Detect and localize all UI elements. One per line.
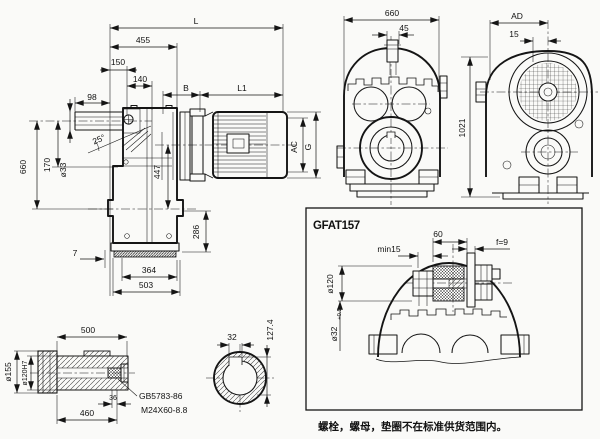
label-bolt-spec: M24X60-8.8 [141, 405, 188, 415]
dim-label-25deg: 25° [91, 132, 107, 146]
detail-box-title: GFAT157 [313, 220, 360, 232]
dim-label-140: 140 [133, 74, 147, 84]
dim-label-G: G [303, 144, 313, 151]
shaft-section-drawing: 32 127.4 [206, 319, 275, 412]
dim-label-AC: AC [289, 141, 299, 153]
dim-label-d120: ø120 [325, 274, 335, 294]
dim-label-AD: AD [511, 11, 523, 21]
dim-label-L1: L1 [237, 83, 247, 93]
dim-label-d120H7: ø120H7 [22, 360, 29, 385]
dim-label-127-4: 127.4 [265, 319, 275, 341]
shaft-collar [84, 351, 110, 356]
dim-label-d155: ø155 [3, 362, 13, 382]
foot-pad [114, 251, 176, 257]
dim-label-36: 36 [109, 395, 117, 402]
dim-label-170: 170 [42, 158, 52, 172]
dim-label-d33: ø33 [58, 162, 68, 177]
base-strip [350, 184, 434, 191]
dim-label-447: 447 [152, 165, 162, 179]
dim-label-503: 503 [139, 280, 153, 290]
detail-box: GFAT157 [306, 208, 582, 410]
dim-label-min15: min15 [377, 244, 400, 254]
fan-hub [539, 83, 557, 101]
dim-label-364: 364 [142, 265, 156, 275]
detail-pad-left [369, 335, 397, 354]
dim-label-455: 455 [136, 35, 150, 45]
dim-label-150: 150 [111, 57, 125, 67]
technical-drawing-page: L 455 150 140 B L1 98 660 170 ø33 25° 44… [0, 0, 600, 439]
motor-junction-box [227, 134, 249, 153]
detail-casting-line [391, 309, 507, 320]
dim-label-L: L [194, 16, 199, 26]
dim-label-500: 500 [81, 325, 95, 335]
dim-label-f9: f=9 [496, 237, 508, 247]
dim-label-7: 7 [73, 248, 78, 258]
shaft-detail-drawing: 500 ø155 ø120H7 36 460 GB5783-86 M24X60-… [3, 325, 188, 424]
shaft-flange [38, 351, 57, 393]
label-gb-standard: GB5783-86 [139, 391, 183, 401]
input-shaft-stub [387, 40, 398, 62]
height-dimension-1021: 1021 [457, 57, 500, 197]
dim-label-d32-tolerance: +0.5 [337, 308, 343, 319]
dim-label-d32: ø32 [329, 326, 339, 341]
section-bore [223, 361, 257, 395]
dim-label-45: 45 [399, 23, 409, 33]
retaining-bolt [108, 368, 121, 378]
detail-end-plate [467, 253, 475, 307]
side-view-centerlines [29, 121, 296, 209]
detail-bosses [402, 334, 488, 353]
dim-label-660: 660 [18, 160, 28, 174]
dim-label-15: 15 [509, 29, 519, 39]
dim-label-660-front: 660 [385, 8, 399, 18]
detail-pad-right [501, 335, 529, 354]
dim-label-32: 32 [227, 332, 237, 342]
detail-base-wave [376, 357, 521, 364]
dim-label-B: B [183, 83, 189, 93]
dim-label-60: 60 [433, 229, 443, 239]
input-side-view-drawing: AD 15 [476, 11, 598, 204]
dim-label-1021: 1021 [457, 118, 467, 137]
dim-label-98: 98 [87, 92, 97, 102]
detail-shaft-assembly [404, 244, 512, 312]
side-tab-right [440, 76, 447, 98]
mounting-foot [111, 243, 179, 251]
dim-label-460: 460 [80, 408, 94, 418]
front-view-drawing: 660 45 [337, 8, 448, 205]
side-view-drawing: L 455 150 140 B L1 98 660 170 ø33 25° 44… [18, 16, 321, 296]
footnote-text: 螺栓，螺母，垫圈不在标准供货范围内。 [318, 420, 507, 433]
gear-reducer-dimension-drawing: L 455 150 140 B L1 98 660 170 ø33 25° 44… [0, 0, 600, 439]
dim-label-286: 286 [191, 225, 201, 239]
